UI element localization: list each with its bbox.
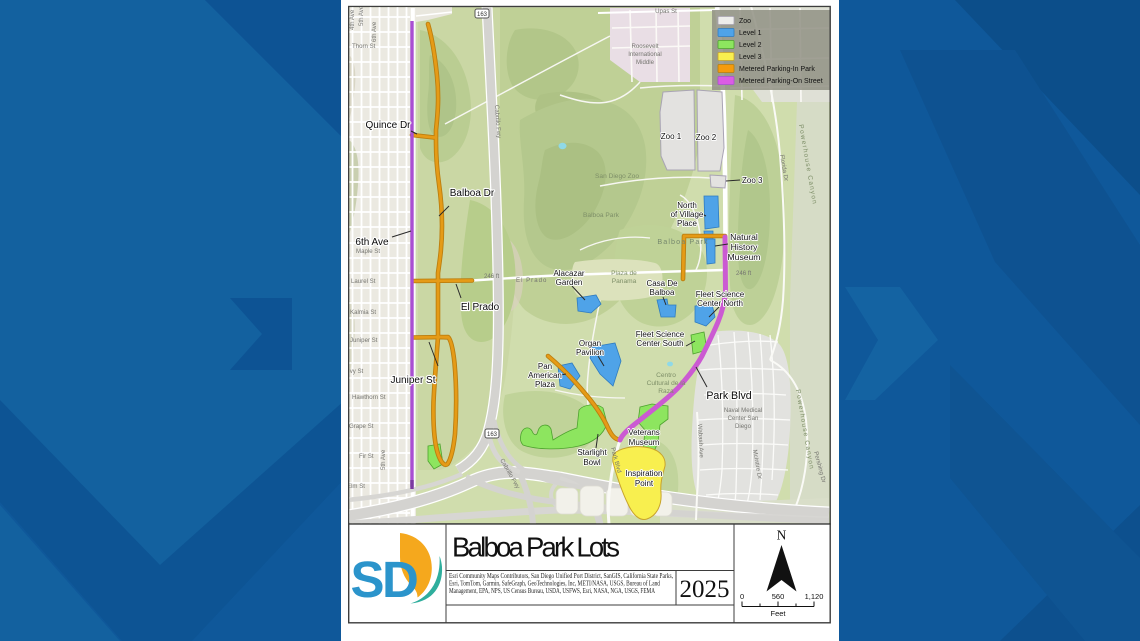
svg-text:Metered Parking-In Park: Metered Parking-In Park [739,66,815,73]
svg-text:Grape St: Grape St [349,423,374,430]
svg-text:Hawthorn St: Hawthorn St [352,394,386,401]
svg-text:Natural: Natural [730,232,758,242]
svg-text:Naval Medical: Naval Medical [724,407,762,414]
svg-text:Elm St: Elm St [347,483,365,490]
svg-text:Casa De: Casa De [646,279,678,288]
svg-text:Center South: Center South [636,339,683,348]
svg-text:6th Ave: 6th Ave [355,237,389,248]
svg-text:Level 2: Level 2 [739,42,762,49]
svg-text:Alacazar: Alacazar [553,269,584,278]
svg-text:SD: SD [351,551,418,608]
svg-text:Quince Dr: Quince Dr [365,120,411,131]
svg-text:Center San: Center San [728,415,759,422]
svg-text:Diego: Diego [735,423,752,430]
svg-text:0: 0 [740,592,744,601]
svg-text:Juniper St: Juniper St [390,375,435,386]
svg-text:Pavilion: Pavilion [576,348,604,357]
svg-text:Inspiration: Inspiration [626,469,663,478]
svg-text:Center North: Center North [697,299,743,308]
svg-text:Balboa Park: Balboa Park [583,212,620,219]
svg-text:Ivy St: Ivy St [348,368,364,375]
svg-text:Veterans: Veterans [628,428,660,437]
svg-text:163: 163 [477,12,488,18]
svg-text:Esri Community Maps Contributo: Esri Community Maps Contributors, San Di… [449,573,673,580]
svg-text:Point: Point [635,479,654,488]
svg-text:North: North [677,201,697,210]
svg-text:International: International [628,51,662,58]
svg-text:Zoo: Zoo [739,18,751,25]
svg-text:American: American [528,371,562,380]
svg-text:El Prado: El Prado [516,277,547,284]
svg-text:El Prado: El Prado [461,302,500,313]
svg-text:Metered Parking-On Street: Metered Parking-On Street [739,78,823,85]
svg-text:Level 1: Level 1 [739,30,762,37]
svg-text:Balboa Park Lots: Balboa Park Lots [452,532,620,563]
svg-text:Balboa Park: Balboa Park [657,237,708,246]
svg-text:Maple St: Maple St [356,248,380,255]
svg-text:Laurel St: Laurel St [351,278,376,285]
svg-text:Upas St: Upas St [655,8,677,15]
svg-text:Esri, TomTom, Garmin, SafeGrap: Esri, TomTom, Garmin, SafeGraph, GeoTech… [449,581,660,588]
svg-text:Zoo 2: Zoo 2 [696,133,717,142]
svg-text:Pan: Pan [538,362,552,371]
svg-text:Plaza de: Plaza de [611,270,637,277]
svg-text:6th Ave: 6th Ave [371,21,378,42]
svg-text:Park Blvd: Park Blvd [706,390,751,402]
svg-text:Balboa Dr: Balboa Dr [450,188,495,199]
svg-text:4th Ave: 4th Ave [349,9,356,30]
svg-text:560: 560 [772,592,785,601]
svg-text:Level 3: Level 3 [739,54,762,61]
svg-text:Garden: Garden [556,278,583,287]
svg-text:246 ft: 246 ft [484,273,500,280]
svg-text:5th Ave: 5th Ave [380,449,387,470]
svg-text:Zoo 3: Zoo 3 [742,176,763,185]
svg-text:Place: Place [677,219,698,228]
svg-text:Feet: Feet [770,609,786,618]
svg-text:Management, EPA, NPS, US Censu: Management, EPA, NPS, US Census Bureau, … [449,588,655,595]
svg-text:2025: 2025 [680,576,730,603]
svg-text:Fleet Science: Fleet Science [636,330,685,339]
svg-text:Fir St: Fir St [359,453,374,460]
svg-text:Middle: Middle [636,59,655,66]
svg-text:163: 163 [487,432,498,438]
svg-text:Museum: Museum [728,252,761,262]
svg-text:Plaza: Plaza [535,380,556,389]
svg-text:5th Ave: 5th Ave [358,5,365,26]
svg-text:San Diego Zoo: San Diego Zoo [595,173,639,180]
svg-text:246 ft: 246 ft [736,270,752,277]
svg-text:Panama: Panama [612,278,637,285]
svg-text:Cultural de la: Cultural de la [647,380,686,387]
svg-text:Roosevelt: Roosevelt [631,43,658,50]
svg-text:1,120: 1,120 [805,592,824,601]
svg-text:Starlight: Starlight [577,448,607,457]
svg-text:Centro: Centro [656,372,676,379]
svg-text:Raza: Raza [658,388,674,395]
svg-text:Museum: Museum [629,438,660,447]
svg-text:History: History [731,242,758,252]
svg-text:Thorn St: Thorn St [352,43,376,50]
svg-text:Balboa: Balboa [650,288,675,297]
svg-text:Bowl: Bowl [583,458,601,467]
svg-text:Zoo 1: Zoo 1 [661,132,682,141]
svg-text:Kalmia St: Kalmia St [350,309,376,316]
svg-text:Organ: Organ [579,339,601,348]
svg-text:Fleet Science: Fleet Science [696,290,745,299]
svg-text:Juniper St: Juniper St [350,337,378,344]
svg-text:of Village: of Village [671,210,704,219]
svg-text:N: N [777,528,787,543]
